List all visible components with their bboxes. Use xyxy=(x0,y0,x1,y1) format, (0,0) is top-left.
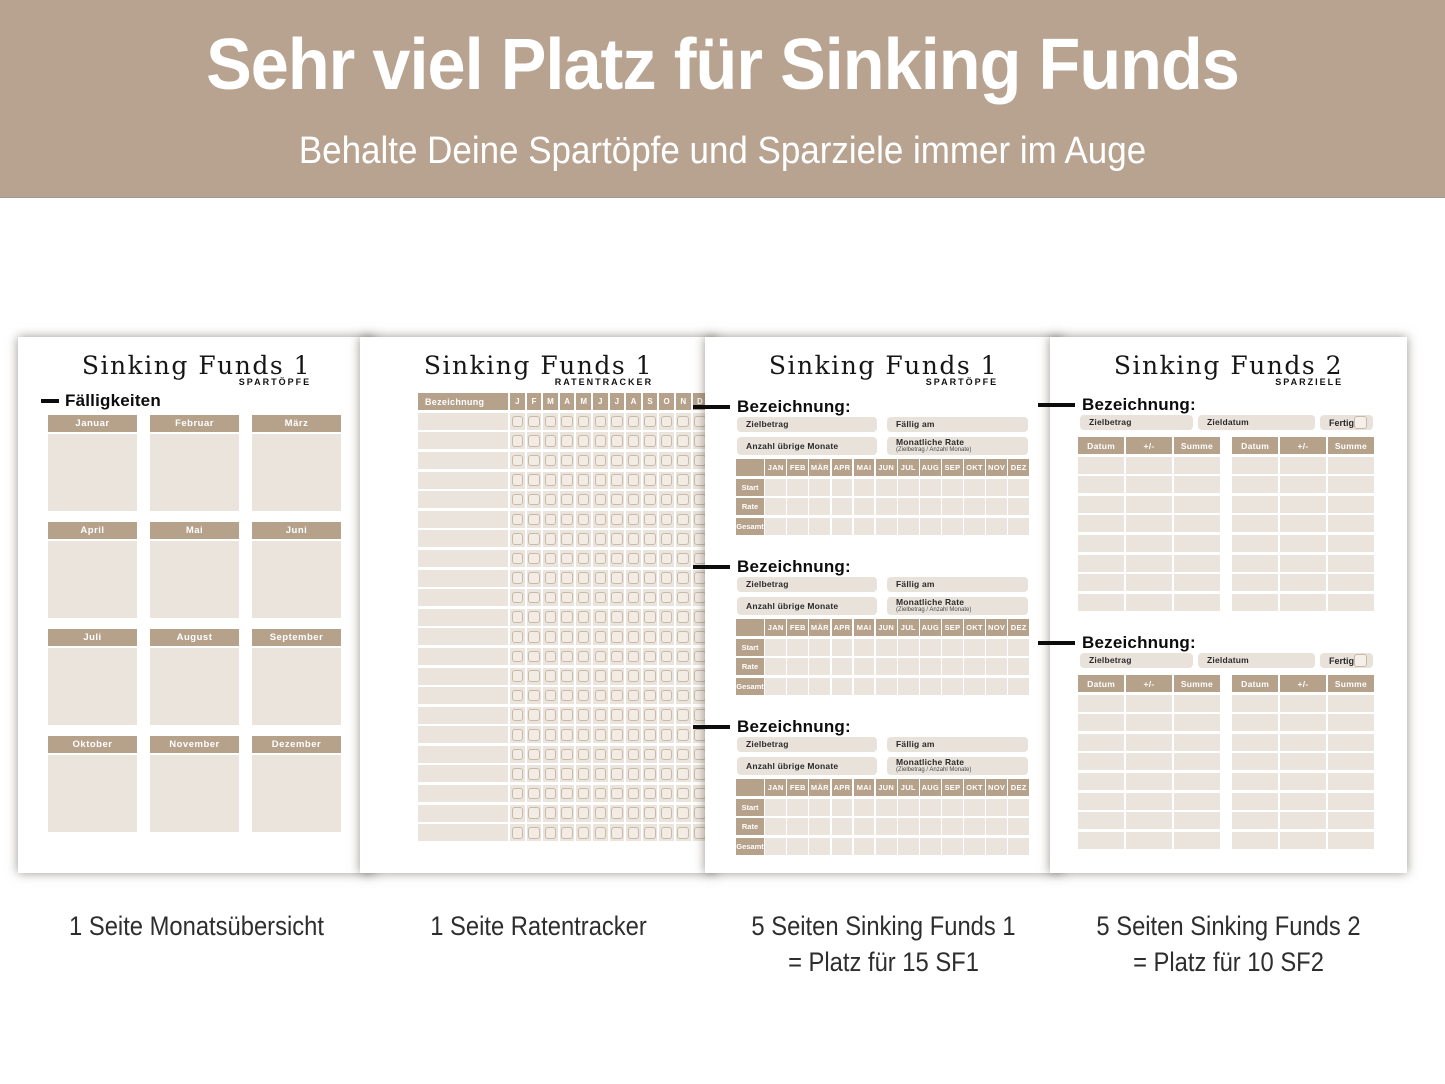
tracker-checkbox[interactable] xyxy=(512,435,524,447)
month-value-cell[interactable] xyxy=(787,658,808,675)
tracker-checkbox[interactable] xyxy=(578,533,590,545)
month-value-cell[interactable] xyxy=(942,799,963,816)
month-value-cell[interactable] xyxy=(942,838,963,855)
month-value-cell[interactable] xyxy=(832,639,853,656)
log-cell[interactable] xyxy=(1174,594,1220,611)
tracker-checkbox[interactable] xyxy=(561,494,573,506)
tracker-checkbox[interactable] xyxy=(545,435,557,447)
log-cell[interactable] xyxy=(1126,535,1172,552)
log-cell[interactable] xyxy=(1126,476,1172,493)
month-value-cell[interactable] xyxy=(854,518,875,535)
tracker-checkbox[interactable] xyxy=(628,749,640,761)
monatliche-rate-field[interactable]: Monatliche Rate(Zielbetrag / Anzahl Mona… xyxy=(887,597,1028,615)
month-value-cell[interactable] xyxy=(986,818,1007,835)
log-cell[interactable] xyxy=(1280,753,1326,770)
log-cell[interactable] xyxy=(1174,535,1220,552)
log-cell[interactable] xyxy=(1328,832,1374,849)
log-cell[interactable] xyxy=(1328,773,1374,790)
tracker-checkbox[interactable] xyxy=(661,435,673,447)
log-cell[interactable] xyxy=(1328,714,1374,731)
tracker-checkbox[interactable] xyxy=(677,670,689,682)
month-value-cell[interactable] xyxy=(876,658,897,675)
zielbetrag-field[interactable]: Zielbetrag xyxy=(1080,653,1193,668)
tracker-checkbox[interactable] xyxy=(545,455,557,467)
tracker-checkbox[interactable] xyxy=(677,416,689,428)
tracker-name-cell[interactable] xyxy=(418,746,508,763)
tracker-name-cell[interactable] xyxy=(418,707,508,724)
fertig-checkbox[interactable] xyxy=(1354,654,1367,667)
tracker-checkbox[interactable] xyxy=(628,435,640,447)
tracker-checkbox[interactable] xyxy=(661,553,673,565)
month-value-cell[interactable] xyxy=(898,658,919,675)
log-cell[interactable] xyxy=(1280,695,1326,712)
log-cell[interactable] xyxy=(1328,476,1374,493)
tracker-checkbox[interactable] xyxy=(578,455,590,467)
tracker-checkbox[interactable] xyxy=(644,435,656,447)
month-value-cell[interactable] xyxy=(809,498,830,515)
tracker-checkbox[interactable] xyxy=(595,670,607,682)
log-cell[interactable] xyxy=(1328,496,1374,513)
log-cell[interactable] xyxy=(1126,574,1172,591)
tracker-checkbox[interactable] xyxy=(611,768,623,780)
tracker-checkbox[interactable] xyxy=(578,553,590,565)
tracker-checkbox[interactable] xyxy=(578,709,590,721)
tracker-checkbox[interactable] xyxy=(611,611,623,623)
month-value-cell[interactable] xyxy=(876,818,897,835)
tracker-checkbox[interactable] xyxy=(528,435,540,447)
tracker-name-cell[interactable] xyxy=(418,413,508,430)
month-value-cell[interactable] xyxy=(1008,639,1029,656)
log-cell[interactable] xyxy=(1174,753,1220,770)
month-value-cell[interactable] xyxy=(854,479,875,496)
log-cell[interactable] xyxy=(1126,457,1172,474)
month-value-cell[interactable] xyxy=(876,518,897,535)
tracker-checkbox[interactable] xyxy=(644,572,656,584)
anzahl-brige-monate-field[interactable]: Anzahl übrige Monate xyxy=(737,437,877,455)
month-value-cell[interactable] xyxy=(765,838,786,855)
tracker-checkbox[interactable] xyxy=(694,494,706,506)
tracker-checkbox[interactable] xyxy=(628,631,640,643)
tracker-checkbox[interactable] xyxy=(611,631,623,643)
tracker-checkbox[interactable] xyxy=(628,788,640,800)
tracker-checkbox[interactable] xyxy=(661,670,673,682)
tracker-checkbox[interactable] xyxy=(611,533,623,545)
log-cell[interactable] xyxy=(1280,574,1326,591)
tracker-checkbox[interactable] xyxy=(595,592,607,604)
tracker-checkbox[interactable] xyxy=(661,729,673,741)
month-value-cell[interactable] xyxy=(787,498,808,515)
tracker-checkbox[interactable] xyxy=(595,416,607,428)
month-value-cell[interactable] xyxy=(920,799,941,816)
tracker-checkbox[interactable] xyxy=(661,474,673,486)
log-cell[interactable] xyxy=(1280,832,1326,849)
month-value-cell[interactable] xyxy=(964,799,985,816)
tracker-checkbox[interactable] xyxy=(512,690,524,702)
log-cell[interactable] xyxy=(1078,515,1124,532)
log-cell[interactable] xyxy=(1280,714,1326,731)
tracker-checkbox[interactable] xyxy=(595,768,607,780)
log-cell[interactable] xyxy=(1328,457,1374,474)
log-cell[interactable] xyxy=(1078,535,1124,552)
tracker-checkbox[interactable] xyxy=(661,611,673,623)
tracker-checkbox[interactable] xyxy=(661,514,673,526)
month-value-cell[interactable] xyxy=(832,479,853,496)
tracker-checkbox[interactable] xyxy=(578,631,590,643)
tracker-checkbox[interactable] xyxy=(628,690,640,702)
tracker-checkbox[interactable] xyxy=(628,729,640,741)
tracker-name-cell[interactable] xyxy=(418,570,508,587)
tracker-checkbox[interactable] xyxy=(661,533,673,545)
tracker-checkbox[interactable] xyxy=(644,514,656,526)
tracker-checkbox[interactable] xyxy=(677,514,689,526)
month-value-cell[interactable] xyxy=(920,678,941,695)
month-value-cell[interactable] xyxy=(809,658,830,675)
tracker-checkbox[interactable] xyxy=(595,435,607,447)
log-cell[interactable] xyxy=(1232,714,1278,731)
tracker-checkbox[interactable] xyxy=(694,768,706,780)
tracker-name-cell[interactable] xyxy=(418,589,508,606)
tracker-checkbox[interactable] xyxy=(611,494,623,506)
log-cell[interactable] xyxy=(1078,773,1124,790)
month-value-cell[interactable] xyxy=(920,479,941,496)
month-value-cell[interactable] xyxy=(898,498,919,515)
tracker-checkbox[interactable] xyxy=(595,474,607,486)
tracker-checkbox[interactable] xyxy=(644,807,656,819)
month-value-cell[interactable] xyxy=(964,678,985,695)
tracker-checkbox[interactable] xyxy=(578,416,590,428)
tracker-checkbox[interactable] xyxy=(578,749,590,761)
tracker-checkbox[interactable] xyxy=(611,572,623,584)
tracker-checkbox[interactable] xyxy=(561,553,573,565)
tracker-checkbox[interactable] xyxy=(611,788,623,800)
log-cell[interactable] xyxy=(1174,695,1220,712)
log-cell[interactable] xyxy=(1174,457,1220,474)
zielbetrag-field[interactable]: Zielbetrag xyxy=(1080,415,1193,430)
month-value-cell[interactable] xyxy=(876,678,897,695)
tracker-checkbox[interactable] xyxy=(644,494,656,506)
tracker-checkbox[interactable] xyxy=(644,690,656,702)
month-value-cell[interactable] xyxy=(787,799,808,816)
month-value-cell[interactable] xyxy=(765,479,786,496)
month-value-cell[interactable] xyxy=(920,639,941,656)
tracker-checkbox[interactable] xyxy=(561,416,573,428)
tracker-checkbox[interactable] xyxy=(694,788,706,800)
tracker-checkbox[interactable] xyxy=(595,749,607,761)
tracker-checkbox[interactable] xyxy=(611,474,623,486)
log-cell[interactable] xyxy=(1232,793,1278,810)
tracker-checkbox[interactable] xyxy=(528,709,540,721)
tracker-checkbox[interactable] xyxy=(694,455,706,467)
tracker-checkbox[interactable] xyxy=(595,709,607,721)
log-cell[interactable] xyxy=(1328,753,1374,770)
log-cell[interactable] xyxy=(1328,574,1374,591)
month-value-cell[interactable] xyxy=(986,799,1007,816)
tracker-checkbox[interactable] xyxy=(561,690,573,702)
tracker-checkbox[interactable] xyxy=(578,494,590,506)
log-cell[interactable] xyxy=(1232,594,1278,611)
month-value-cell[interactable] xyxy=(920,498,941,515)
tracker-checkbox[interactable] xyxy=(677,690,689,702)
tracker-checkbox[interactable] xyxy=(628,807,640,819)
month-value-cell[interactable] xyxy=(832,518,853,535)
tracker-checkbox[interactable] xyxy=(644,631,656,643)
tracker-checkbox[interactable] xyxy=(528,670,540,682)
tracker-checkbox[interactable] xyxy=(595,807,607,819)
tracker-checkbox[interactable] xyxy=(661,788,673,800)
month-value-cell[interactable] xyxy=(1008,818,1029,835)
tracker-checkbox[interactable] xyxy=(644,651,656,663)
month-value-cell[interactable] xyxy=(898,678,919,695)
tracker-checkbox[interactable] xyxy=(677,788,689,800)
month-value-cell[interactable] xyxy=(854,658,875,675)
anzahl-brige-monate-field[interactable]: Anzahl übrige Monate xyxy=(737,597,877,615)
tracker-checkbox[interactable] xyxy=(611,690,623,702)
month-value-cell[interactable] xyxy=(809,799,830,816)
log-cell[interactable] xyxy=(1126,714,1172,731)
tracker-checkbox[interactable] xyxy=(644,709,656,721)
tracker-checkbox[interactable] xyxy=(677,553,689,565)
tracker-checkbox[interactable] xyxy=(677,611,689,623)
log-cell[interactable] xyxy=(1174,555,1220,572)
month-value-cell[interactable] xyxy=(787,639,808,656)
tracker-checkbox[interactable] xyxy=(677,709,689,721)
tracker-checkbox[interactable] xyxy=(561,807,573,819)
tracker-checkbox[interactable] xyxy=(644,788,656,800)
log-cell[interactable] xyxy=(1126,695,1172,712)
log-cell[interactable] xyxy=(1126,773,1172,790)
month-value-cell[interactable] xyxy=(765,518,786,535)
month-value-cell[interactable] xyxy=(1008,498,1029,515)
month-card-body[interactable] xyxy=(48,648,137,725)
tracker-checkbox[interactable] xyxy=(628,709,640,721)
month-value-cell[interactable] xyxy=(765,799,786,816)
month-value-cell[interactable] xyxy=(787,518,808,535)
tracker-checkbox[interactable] xyxy=(611,670,623,682)
month-value-cell[interactable] xyxy=(876,498,897,515)
tracker-checkbox[interactable] xyxy=(561,611,573,623)
month-value-cell[interactable] xyxy=(876,479,897,496)
month-value-cell[interactable] xyxy=(986,658,1007,675)
tracker-checkbox[interactable] xyxy=(545,572,557,584)
month-value-cell[interactable] xyxy=(920,658,941,675)
log-cell[interactable] xyxy=(1078,457,1124,474)
month-value-cell[interactable] xyxy=(1008,838,1029,855)
month-value-cell[interactable] xyxy=(964,818,985,835)
month-value-cell[interactable] xyxy=(898,518,919,535)
month-value-cell[interactable] xyxy=(964,639,985,656)
tracker-checkbox[interactable] xyxy=(545,807,557,819)
anzahl-brige-monate-field[interactable]: Anzahl übrige Monate xyxy=(737,757,877,775)
tracker-checkbox[interactable] xyxy=(561,670,573,682)
month-value-cell[interactable] xyxy=(787,479,808,496)
month-value-cell[interactable] xyxy=(1008,658,1029,675)
tracker-checkbox[interactable] xyxy=(578,788,590,800)
tracker-checkbox[interactable] xyxy=(545,533,557,545)
tracker-checkbox[interactable] xyxy=(694,514,706,526)
tracker-checkbox[interactable] xyxy=(611,709,623,721)
log-cell[interactable] xyxy=(1126,496,1172,513)
month-value-cell[interactable] xyxy=(832,818,853,835)
tracker-checkbox[interactable] xyxy=(528,611,540,623)
month-value-cell[interactable] xyxy=(898,479,919,496)
tracker-checkbox[interactable] xyxy=(661,416,673,428)
tracker-checkbox[interactable] xyxy=(512,670,524,682)
tracker-name-cell[interactable] xyxy=(418,628,508,645)
tracker-checkbox[interactable] xyxy=(561,729,573,741)
f-llig-am-field[interactable]: Fällig am xyxy=(887,577,1028,592)
tracker-checkbox[interactable] xyxy=(628,474,640,486)
tracker-name-cell[interactable] xyxy=(418,452,508,469)
tracker-checkbox[interactable] xyxy=(628,651,640,663)
month-value-cell[interactable] xyxy=(964,518,985,535)
month-value-cell[interactable] xyxy=(787,838,808,855)
tracker-checkbox[interactable] xyxy=(561,768,573,780)
log-cell[interactable] xyxy=(1328,734,1374,751)
month-value-cell[interactable] xyxy=(765,658,786,675)
month-value-cell[interactable] xyxy=(986,498,1007,515)
tracker-name-cell[interactable] xyxy=(418,432,508,449)
tracker-checkbox[interactable] xyxy=(595,651,607,663)
month-value-cell[interactable] xyxy=(854,818,875,835)
tracker-checkbox[interactable] xyxy=(528,455,540,467)
tracker-checkbox[interactable] xyxy=(561,631,573,643)
log-cell[interactable] xyxy=(1328,535,1374,552)
tracker-checkbox[interactable] xyxy=(545,690,557,702)
tracker-checkbox[interactable] xyxy=(595,553,607,565)
tracker-checkbox[interactable] xyxy=(611,435,623,447)
month-value-cell[interactable] xyxy=(986,838,1007,855)
tracker-checkbox[interactable] xyxy=(545,827,557,839)
tracker-checkbox[interactable] xyxy=(512,455,524,467)
log-cell[interactable] xyxy=(1280,773,1326,790)
log-cell[interactable] xyxy=(1232,574,1278,591)
tracker-checkbox[interactable] xyxy=(677,651,689,663)
month-value-cell[interactable] xyxy=(854,838,875,855)
tracker-checkbox[interactable] xyxy=(528,749,540,761)
tracker-checkbox[interactable] xyxy=(694,416,706,428)
tracker-checkbox[interactable] xyxy=(561,572,573,584)
tracker-checkbox[interactable] xyxy=(611,807,623,819)
month-value-cell[interactable] xyxy=(942,498,963,515)
month-value-cell[interactable] xyxy=(809,818,830,835)
tracker-checkbox[interactable] xyxy=(661,651,673,663)
log-cell[interactable] xyxy=(1078,555,1124,572)
tracker-checkbox[interactable] xyxy=(661,709,673,721)
tracker-checkbox[interactable] xyxy=(561,788,573,800)
tracker-checkbox[interactable] xyxy=(528,592,540,604)
tracker-checkbox[interactable] xyxy=(512,651,524,663)
log-cell[interactable] xyxy=(1126,793,1172,810)
month-value-cell[interactable] xyxy=(942,658,963,675)
tracker-checkbox[interactable] xyxy=(512,611,524,623)
log-cell[interactable] xyxy=(1078,574,1124,591)
tracker-checkbox[interactable] xyxy=(694,592,706,604)
log-cell[interactable] xyxy=(1126,832,1172,849)
log-cell[interactable] xyxy=(1328,594,1374,611)
log-cell[interactable] xyxy=(1232,535,1278,552)
log-cell[interactable] xyxy=(1126,812,1172,829)
tracker-checkbox[interactable] xyxy=(528,690,540,702)
month-value-cell[interactable] xyxy=(942,818,963,835)
tracker-checkbox[interactable] xyxy=(611,514,623,526)
month-value-cell[interactable] xyxy=(898,838,919,855)
tracker-checkbox[interactable] xyxy=(561,592,573,604)
log-cell[interactable] xyxy=(1232,695,1278,712)
month-value-cell[interactable] xyxy=(920,518,941,535)
tracker-checkbox[interactable] xyxy=(611,416,623,428)
log-cell[interactable] xyxy=(1328,695,1374,712)
tracker-checkbox[interactable] xyxy=(545,553,557,565)
tracker-checkbox[interactable] xyxy=(628,455,640,467)
month-card-body[interactable] xyxy=(48,755,137,832)
tracker-checkbox[interactable] xyxy=(595,611,607,623)
tracker-name-cell[interactable] xyxy=(418,609,508,626)
log-cell[interactable] xyxy=(1232,812,1278,829)
month-value-cell[interactable] xyxy=(854,498,875,515)
tracker-checkbox[interactable] xyxy=(578,827,590,839)
tracker-checkbox[interactable] xyxy=(512,768,524,780)
tracker-checkbox[interactable] xyxy=(628,572,640,584)
tracker-checkbox[interactable] xyxy=(512,807,524,819)
month-value-cell[interactable] xyxy=(876,639,897,656)
tracker-checkbox[interactable] xyxy=(528,631,540,643)
zieldatum-field[interactable]: Zieldatum xyxy=(1198,415,1315,430)
log-cell[interactable] xyxy=(1078,812,1124,829)
month-value-cell[interactable] xyxy=(832,498,853,515)
tracker-checkbox[interactable] xyxy=(561,455,573,467)
tracker-checkbox[interactable] xyxy=(628,514,640,526)
tracker-checkbox[interactable] xyxy=(595,827,607,839)
tracker-name-cell[interactable] xyxy=(418,530,508,547)
month-value-cell[interactable] xyxy=(809,518,830,535)
tracker-checkbox[interactable] xyxy=(628,592,640,604)
tracker-checkbox[interactable] xyxy=(694,474,706,486)
tracker-checkbox[interactable] xyxy=(595,631,607,643)
tracker-checkbox[interactable] xyxy=(611,592,623,604)
tracker-name-cell[interactable] xyxy=(418,785,508,802)
zielbetrag-field[interactable]: Zielbetrag xyxy=(737,577,877,592)
tracker-checkbox[interactable] xyxy=(595,729,607,741)
tracker-checkbox[interactable] xyxy=(578,572,590,584)
tracker-checkbox[interactable] xyxy=(561,514,573,526)
tracker-checkbox[interactable] xyxy=(661,572,673,584)
tracker-checkbox[interactable] xyxy=(528,533,540,545)
tracker-checkbox[interactable] xyxy=(628,768,640,780)
month-value-cell[interactable] xyxy=(964,658,985,675)
tracker-checkbox[interactable] xyxy=(677,435,689,447)
tracker-checkbox[interactable] xyxy=(545,768,557,780)
tracker-checkbox[interactable] xyxy=(512,827,524,839)
log-cell[interactable] xyxy=(1280,734,1326,751)
tracker-checkbox[interactable] xyxy=(611,553,623,565)
tracker-checkbox[interactable] xyxy=(512,592,524,604)
tracker-checkbox[interactable] xyxy=(677,827,689,839)
log-cell[interactable] xyxy=(1174,793,1220,810)
tracker-checkbox[interactable] xyxy=(644,474,656,486)
tracker-checkbox[interactable] xyxy=(644,553,656,565)
tracker-checkbox[interactable] xyxy=(528,514,540,526)
log-cell[interactable] xyxy=(1078,496,1124,513)
month-value-cell[interactable] xyxy=(832,838,853,855)
tracker-checkbox[interactable] xyxy=(512,788,524,800)
log-cell[interactable] xyxy=(1078,734,1124,751)
tracker-checkbox[interactable] xyxy=(677,807,689,819)
tracker-checkbox[interactable] xyxy=(677,729,689,741)
tracker-checkbox[interactable] xyxy=(661,592,673,604)
month-value-cell[interactable] xyxy=(920,818,941,835)
log-cell[interactable] xyxy=(1328,812,1374,829)
tracker-checkbox[interactable] xyxy=(595,533,607,545)
